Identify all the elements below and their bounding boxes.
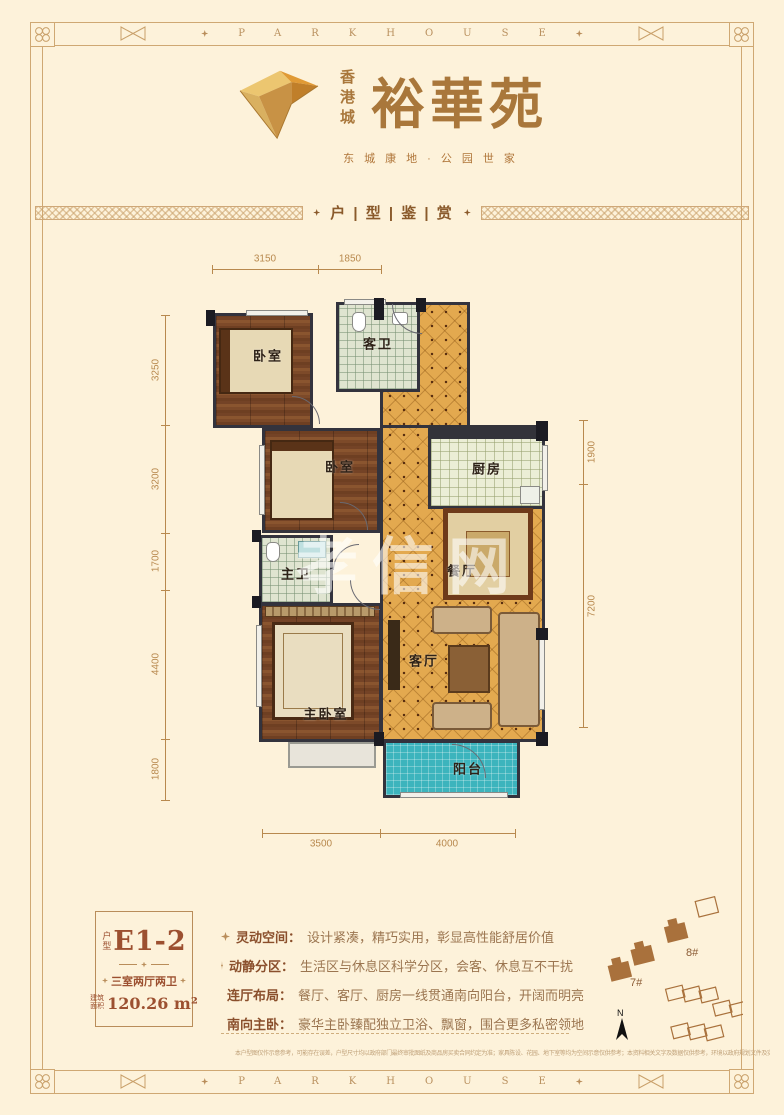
wardrobe-graphic xyxy=(265,606,375,617)
toilet-graphic xyxy=(352,312,366,332)
dimension-value: 4400 xyxy=(151,653,162,675)
corner-ornament-bottom-right xyxy=(729,1069,754,1094)
room-label-living: 客厅 xyxy=(409,651,439,670)
ornament-strip-right xyxy=(481,206,749,220)
dimension-value: 1900 xyxy=(587,441,598,463)
four-point-star-icon xyxy=(576,30,583,37)
wall-column xyxy=(206,310,215,326)
sofa-graphic xyxy=(432,702,492,730)
four-point-star-icon xyxy=(102,978,108,984)
bay-window-graphic xyxy=(288,742,376,768)
room-label-bedroom-2: 卧室 xyxy=(325,457,355,476)
bowtie-ornament-icon xyxy=(120,26,146,41)
feature-item: 南向主卧： 豪华主卧臻配独立卫浴、飘窗，围合更多私密领地 xyxy=(221,1014,573,1033)
gem-logo-icon xyxy=(236,66,322,142)
quatrefoil-icon xyxy=(733,26,750,43)
toilet-graphic xyxy=(266,542,280,562)
room-label-kitchen: 厨房 xyxy=(472,459,502,478)
feature-desc: 生活区与休息区科学分区，会客、休息互不干扰 xyxy=(300,956,573,975)
unit-card-divider xyxy=(119,962,169,968)
unit-layout-row: 三室两厅两卫 xyxy=(102,973,186,989)
wall-column xyxy=(252,530,261,542)
feature-desc: 设计紧凑，精巧实用，彰显高性能舒居价值 xyxy=(307,927,554,946)
dimension-value: 3500 xyxy=(310,839,332,850)
wall-column xyxy=(536,421,548,441)
window xyxy=(400,792,508,798)
logo-project-name: 裕華苑 xyxy=(371,77,548,131)
unit-area-label: 建筑面积 xyxy=(90,995,105,1011)
fridge-graphic xyxy=(520,486,540,504)
dimension-value: 4000 xyxy=(436,839,458,850)
dimension-value: 1850 xyxy=(339,254,361,265)
floorplan: 卧室 客卫 卧室 厨房 主卫 餐厅 客厅 主卧室 阳台 孝信网 3150 185… xyxy=(0,240,784,870)
dimension-value: 1700 xyxy=(151,550,162,572)
quatrefoil-icon xyxy=(34,26,51,43)
section-title: 户 | 型 | 鉴 | 赏 xyxy=(330,202,454,223)
unit-area-value: 120.26 m² xyxy=(107,994,198,1013)
window xyxy=(542,445,548,491)
dimension-line-bottom xyxy=(262,833,515,834)
feature-list: 灵动空间： 设计紧凑，精巧实用，彰显高性能舒居价值 动静分区： 生活区与休息区科… xyxy=(221,927,573,1043)
disclaimer-text: 本户型图仅作示意参考，可能存在误差，户型尺寸均以政府部门最终审批图纸及商品房买卖… xyxy=(235,1048,770,1057)
room-label-bedroom-1: 卧室 xyxy=(253,346,283,365)
feature-item: 灵动空间： 设计紧凑，精巧实用，彰显高性能舒居价值 xyxy=(221,927,573,946)
unit-card: 户型 E1-2 三室两厅两卫 建筑面积 120.26 m² xyxy=(95,911,193,1027)
dimension-value: 3200 xyxy=(151,468,162,490)
bowtie-ornament-icon xyxy=(120,1074,146,1089)
dimension-value: 3250 xyxy=(151,359,162,381)
window xyxy=(259,445,265,515)
wall-column xyxy=(536,732,548,746)
corner-ornament-bottom-left xyxy=(30,1069,55,1094)
dimension-value: 7200 xyxy=(587,595,598,617)
ornament-strip-left xyxy=(35,206,303,220)
unit-layout: 三室两厅两卫 xyxy=(111,973,177,989)
feature-desc: 豪华主卧臻配独立卫浴、飘窗，围合更多私密领地 xyxy=(298,1014,584,1033)
dimension-line-right xyxy=(583,420,584,727)
north-arrow-icon: N xyxy=(616,1008,628,1040)
wall-column xyxy=(416,298,426,312)
four-point-star-icon xyxy=(464,209,471,216)
dimension-line-top xyxy=(212,269,381,270)
four-point-star-icon xyxy=(221,961,223,970)
unit-code: E1-2 xyxy=(113,926,186,957)
window xyxy=(256,625,262,707)
room-label-balcony: 阳台 xyxy=(453,759,483,778)
building-label-8: 8# xyxy=(686,947,699,959)
quatrefoil-icon xyxy=(34,1073,51,1090)
logo-tagline: 东城康地·公园世家 xyxy=(318,150,550,166)
quatrefoil-icon xyxy=(733,1073,750,1090)
corner-ornament-top-right xyxy=(729,22,754,47)
feature-item: 连厅布局： 餐厅、客厅、厨房一线贯通南向阳台，开阔而明亮 xyxy=(221,985,573,1004)
dimension-line-left xyxy=(165,315,166,800)
wall-column xyxy=(374,732,384,746)
coffee-table-graphic xyxy=(448,645,490,693)
wall-column xyxy=(536,628,548,640)
sofa-graphic xyxy=(432,606,492,634)
feature-divider xyxy=(221,1033,569,1034)
four-point-star-icon xyxy=(201,30,208,37)
wall-column xyxy=(252,596,261,608)
room-label-guest-bath: 客卫 xyxy=(363,334,393,353)
dimension-value: 3150 xyxy=(254,254,276,265)
room-label-master-bedroom: 主卧室 xyxy=(303,704,348,723)
window xyxy=(539,630,545,710)
door-arc xyxy=(292,396,320,424)
brand-text-top: PARKHOUSE xyxy=(208,28,576,39)
window xyxy=(246,310,308,316)
feature-title: 动静分区： xyxy=(229,956,294,975)
north-label: N xyxy=(617,1008,624,1018)
four-point-star-icon xyxy=(180,978,186,984)
four-point-star-icon xyxy=(221,932,230,941)
feature-title: 灵动空间： xyxy=(236,927,301,946)
corner-ornament-top-left xyxy=(30,22,55,47)
four-point-star-icon xyxy=(313,209,320,216)
feature-item: 动静分区： 生活区与休息区科学分区，会客、休息互不干扰 xyxy=(221,956,573,975)
site-watermark: 孝信网 xyxy=(296,516,524,606)
wall-column xyxy=(374,298,384,320)
site-map: 7# 8# N xyxy=(598,896,743,1054)
logo-city-name: 香港城 xyxy=(336,69,357,139)
bowtie-ornament-icon xyxy=(638,26,664,41)
feature-title: 连厅布局： xyxy=(227,985,292,1004)
dimension-value: 1800 xyxy=(151,758,162,780)
poster-page: PARKHOUSE PARKHOUSE 香港城 裕華苑 东城康地·公园世家 户 … xyxy=(0,0,784,1115)
building-label-7: 7# xyxy=(630,977,643,989)
brand-band-bottom: PARKHOUSE xyxy=(54,1070,730,1093)
unit-type-label: 户型 xyxy=(101,931,110,951)
four-point-star-icon xyxy=(201,1078,208,1085)
brand-band-top: PARKHOUSE xyxy=(54,22,730,45)
bowtie-ornament-icon xyxy=(638,1074,664,1089)
tv-cabinet-graphic xyxy=(388,620,400,690)
four-point-star-icon xyxy=(576,1078,583,1085)
logo: 香港城 裕華苑 xyxy=(0,66,784,142)
sofa-graphic xyxy=(498,612,540,727)
bed-graphic xyxy=(270,440,334,520)
section-header: 户 | 型 | 鉴 | 赏 xyxy=(0,202,784,223)
unit-area-row: 建筑面积 120.26 m² xyxy=(90,994,198,1013)
feature-desc: 餐厅、客厅、厨房一线贯通南向阳台，开阔而明亮 xyxy=(298,985,584,1004)
kitchen-counter-graphic xyxy=(428,425,545,439)
brand-text-bottom: PARKHOUSE xyxy=(208,1076,576,1087)
feature-title: 南向主卧： xyxy=(227,1014,292,1033)
